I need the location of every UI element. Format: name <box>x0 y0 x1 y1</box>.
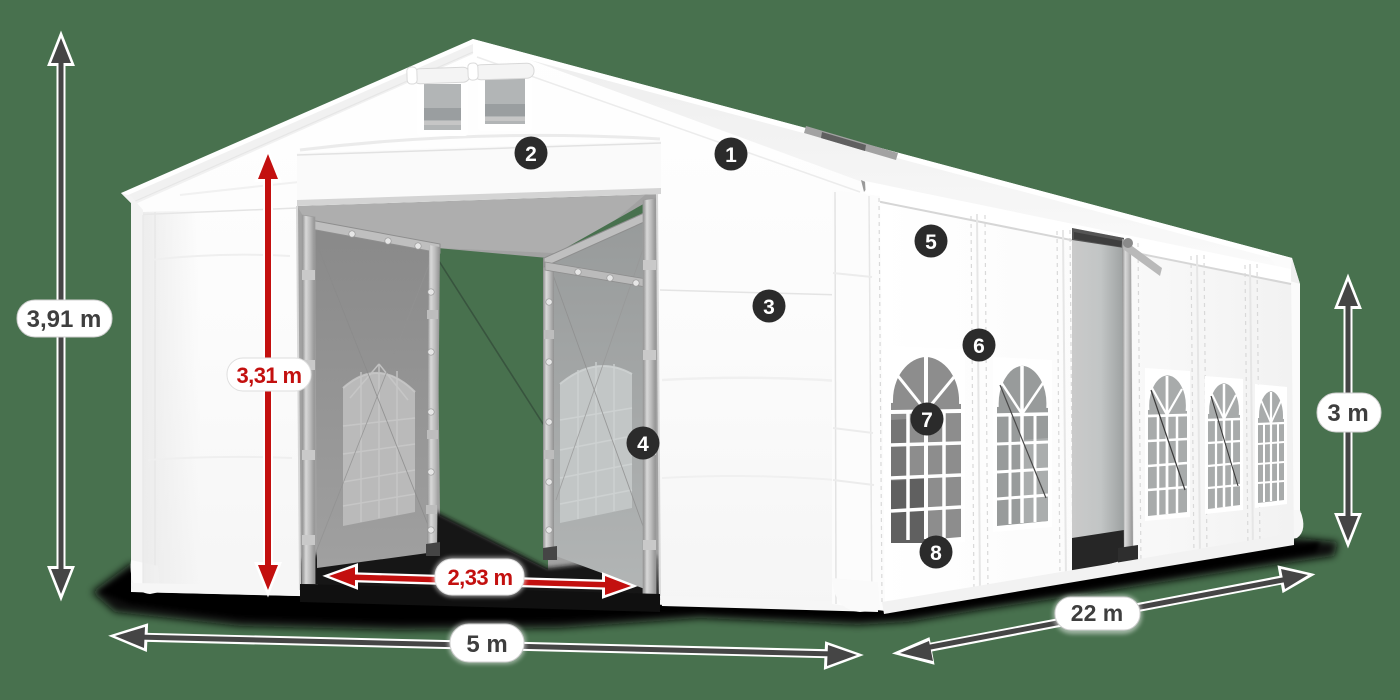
svg-text:7: 7 <box>921 409 933 432</box>
svg-text:3 m: 3 m <box>1327 400 1368 427</box>
svg-text:1: 1 <box>725 144 737 167</box>
svg-text:3,91 m: 3,91 m <box>27 306 102 333</box>
svg-text:8: 8 <box>930 542 942 565</box>
svg-text:2,33 m: 2,33 m <box>448 565 513 590</box>
svg-text:3,31 m: 3,31 m <box>237 363 302 388</box>
svg-text:22 m: 22 m <box>1071 600 1123 626</box>
svg-text:6: 6 <box>973 335 985 358</box>
svg-text:4: 4 <box>637 433 649 456</box>
svg-text:5: 5 <box>925 231 937 254</box>
svg-text:5 m: 5 m <box>466 631 507 658</box>
svg-text:3: 3 <box>763 296 775 319</box>
svg-text:2: 2 <box>525 143 537 166</box>
